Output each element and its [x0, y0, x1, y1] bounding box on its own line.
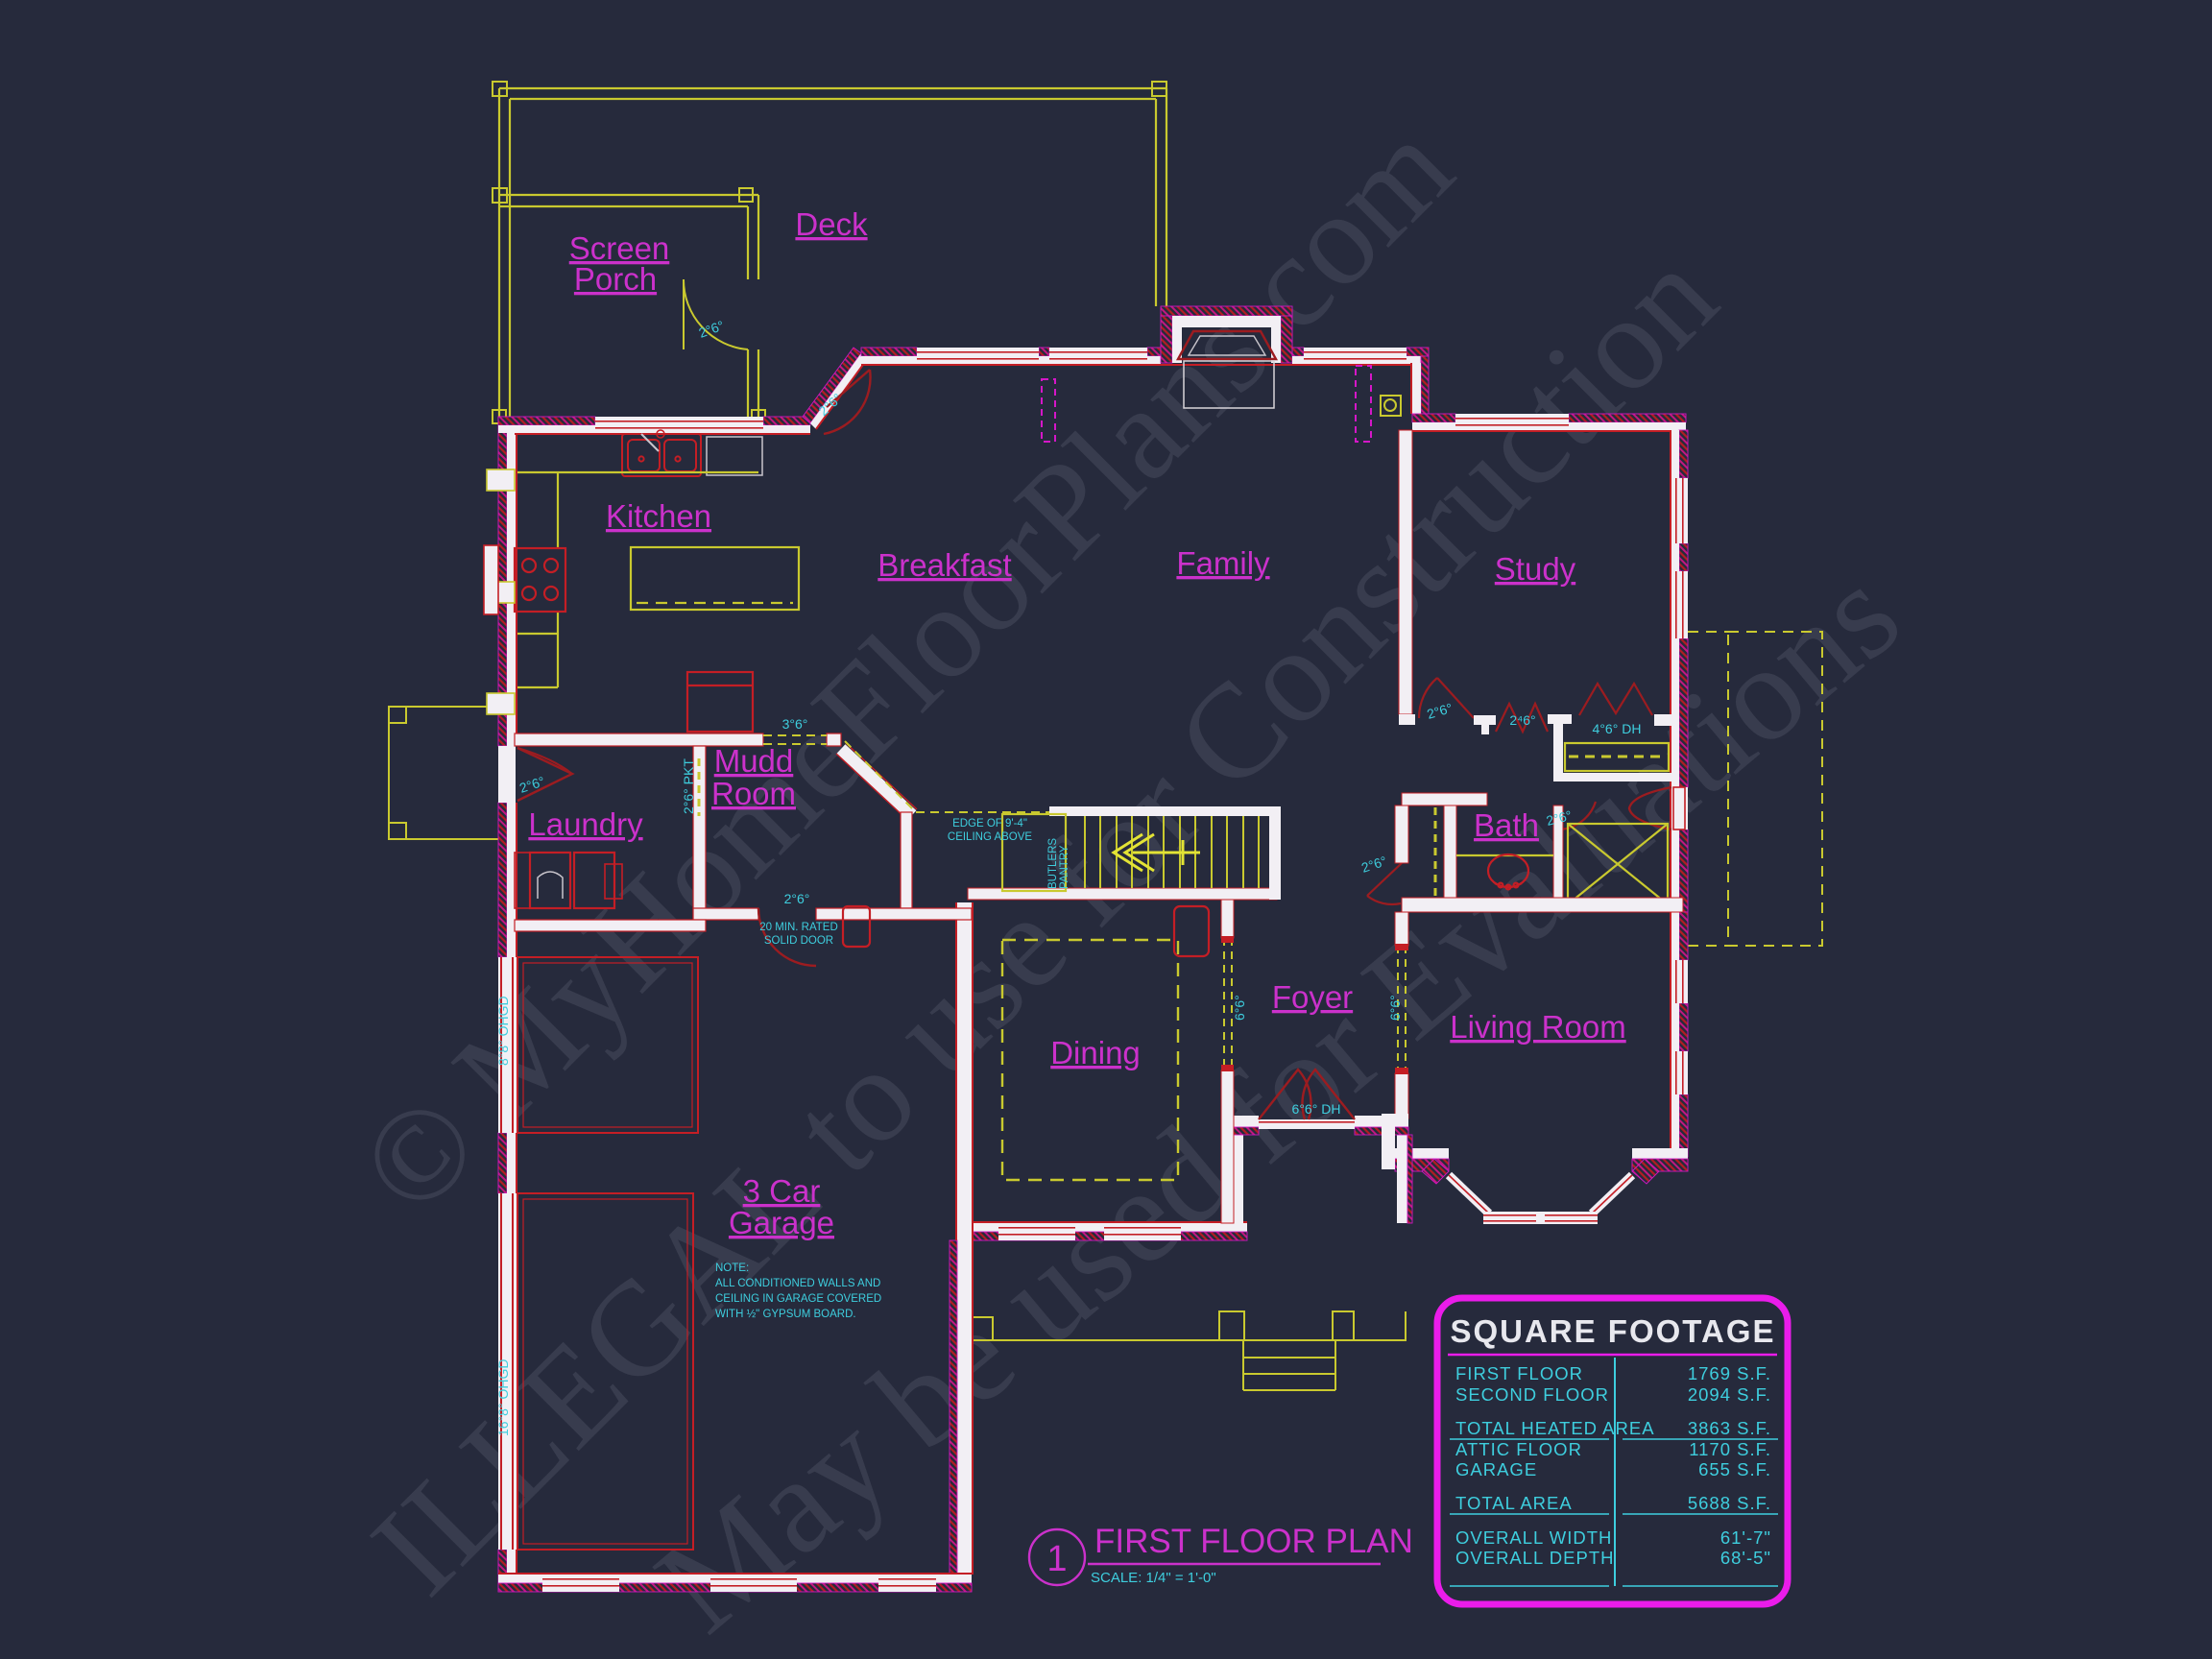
svg-text:Porch: Porch	[574, 261, 657, 297]
svg-text:GARAGE: GARAGE	[1455, 1459, 1537, 1479]
svg-text:3863 S.F.: 3863 S.F.	[1688, 1418, 1771, 1438]
svg-text:8°8° OHGD: 8°8° OHGD	[495, 996, 511, 1066]
svg-text:OVERALL WIDTH: OVERALL WIDTH	[1455, 1527, 1612, 1548]
svg-text:Bath: Bath	[1474, 807, 1539, 843]
svg-text:SECOND FLOOR: SECOND FLOOR	[1455, 1384, 1609, 1405]
svg-text:NOTE:: NOTE:	[715, 1262, 749, 1274]
svg-text:2°6°: 2°6°	[784, 891, 810, 906]
svg-text:Dining: Dining	[1050, 1035, 1141, 1070]
svg-text:FIRST FLOOR PLAN: FIRST FLOOR PLAN	[1094, 1523, 1413, 1560]
svg-text:2°6° PKT: 2°6° PKT	[681, 758, 696, 814]
svg-text:OVERALL DEPTH: OVERALL DEPTH	[1455, 1548, 1615, 1568]
svg-text:TOTAL AREA: TOTAL AREA	[1455, 1493, 1573, 1513]
svg-text:ALL CONDITIONED WALLS AND: ALL CONDITIONED WALLS AND	[715, 1278, 880, 1289]
svg-text:3°6°: 3°6°	[782, 716, 808, 732]
svg-text:3 Car: 3 Car	[743, 1173, 821, 1209]
svg-text:4°6° DH: 4°6° DH	[1593, 721, 1642, 736]
svg-text:TOTAL HEATED AREA: TOTAL HEATED AREA	[1455, 1418, 1655, 1438]
svg-text:2⁴6°: 2⁴6°	[1509, 712, 1535, 728]
svg-text:5688 S.F.: 5688 S.F.	[1688, 1493, 1771, 1513]
svg-text:6°6°: 6°6°	[1387, 995, 1403, 1021]
svg-text:Garage: Garage	[729, 1205, 834, 1240]
svg-text:SQUARE FOOTAGE: SQUARE FOOTAGE	[1450, 1313, 1775, 1349]
svg-text:61'-7": 61'-7"	[1720, 1527, 1771, 1548]
svg-text:Deck: Deck	[795, 206, 868, 242]
svg-text:SCALE: 1/4" = 1'-0": SCALE: 1/4" = 1'-0"	[1091, 1570, 1216, 1586]
svg-text:Laundry: Laundry	[528, 806, 643, 842]
svg-text:16°8° OHGD: 16°8° OHGD	[495, 1359, 511, 1436]
svg-text:BUTLERS: BUTLERS	[1047, 838, 1059, 889]
svg-text:Kitchen: Kitchen	[606, 498, 711, 534]
svg-text:Mudd: Mudd	[714, 743, 794, 779]
svg-text:2094 S.F.: 2094 S.F.	[1688, 1384, 1771, 1405]
svg-text:68'-5": 68'-5"	[1720, 1548, 1771, 1568]
svg-text:6°6°: 6°6°	[1232, 995, 1247, 1021]
svg-text:Room: Room	[711, 776, 796, 811]
svg-text:1: 1	[1046, 1539, 1067, 1579]
svg-text:SOLID DOOR: SOLID DOOR	[764, 935, 833, 947]
svg-text:ATTIC FLOOR: ATTIC FLOOR	[1455, 1439, 1582, 1459]
svg-text:EDGE OF 9'-4": EDGE OF 9'-4"	[952, 818, 1027, 829]
svg-text:655 S.F.: 655 S.F.	[1698, 1459, 1771, 1479]
svg-text:1170 S.F.: 1170 S.F.	[1689, 1439, 1771, 1459]
svg-text:Living Room: Living Room	[1450, 1009, 1625, 1045]
svg-text:CEILING ABOVE: CEILING ABOVE	[948, 831, 1033, 843]
svg-text:1769 S.F.: 1769 S.F.	[1688, 1363, 1771, 1383]
svg-text:PANTRY: PANTRY	[1059, 845, 1070, 889]
svg-text:Breakfast: Breakfast	[878, 547, 1011, 583]
svg-text:WITH ½" GYPSUM BOARD.: WITH ½" GYPSUM BOARD.	[715, 1309, 856, 1320]
svg-text:FIRST FLOOR: FIRST FLOOR	[1455, 1363, 1583, 1383]
svg-text:Study: Study	[1495, 551, 1576, 587]
svg-text:6°6° DH: 6°6° DH	[1292, 1101, 1341, 1117]
svg-text:Foyer: Foyer	[1272, 979, 1353, 1015]
svg-text:Family: Family	[1176, 545, 1270, 581]
svg-text:20 MIN. RATED: 20 MIN. RATED	[759, 922, 838, 933]
svg-text:CEILING IN GARAGE COVERED: CEILING IN GARAGE COVERED	[715, 1293, 881, 1305]
